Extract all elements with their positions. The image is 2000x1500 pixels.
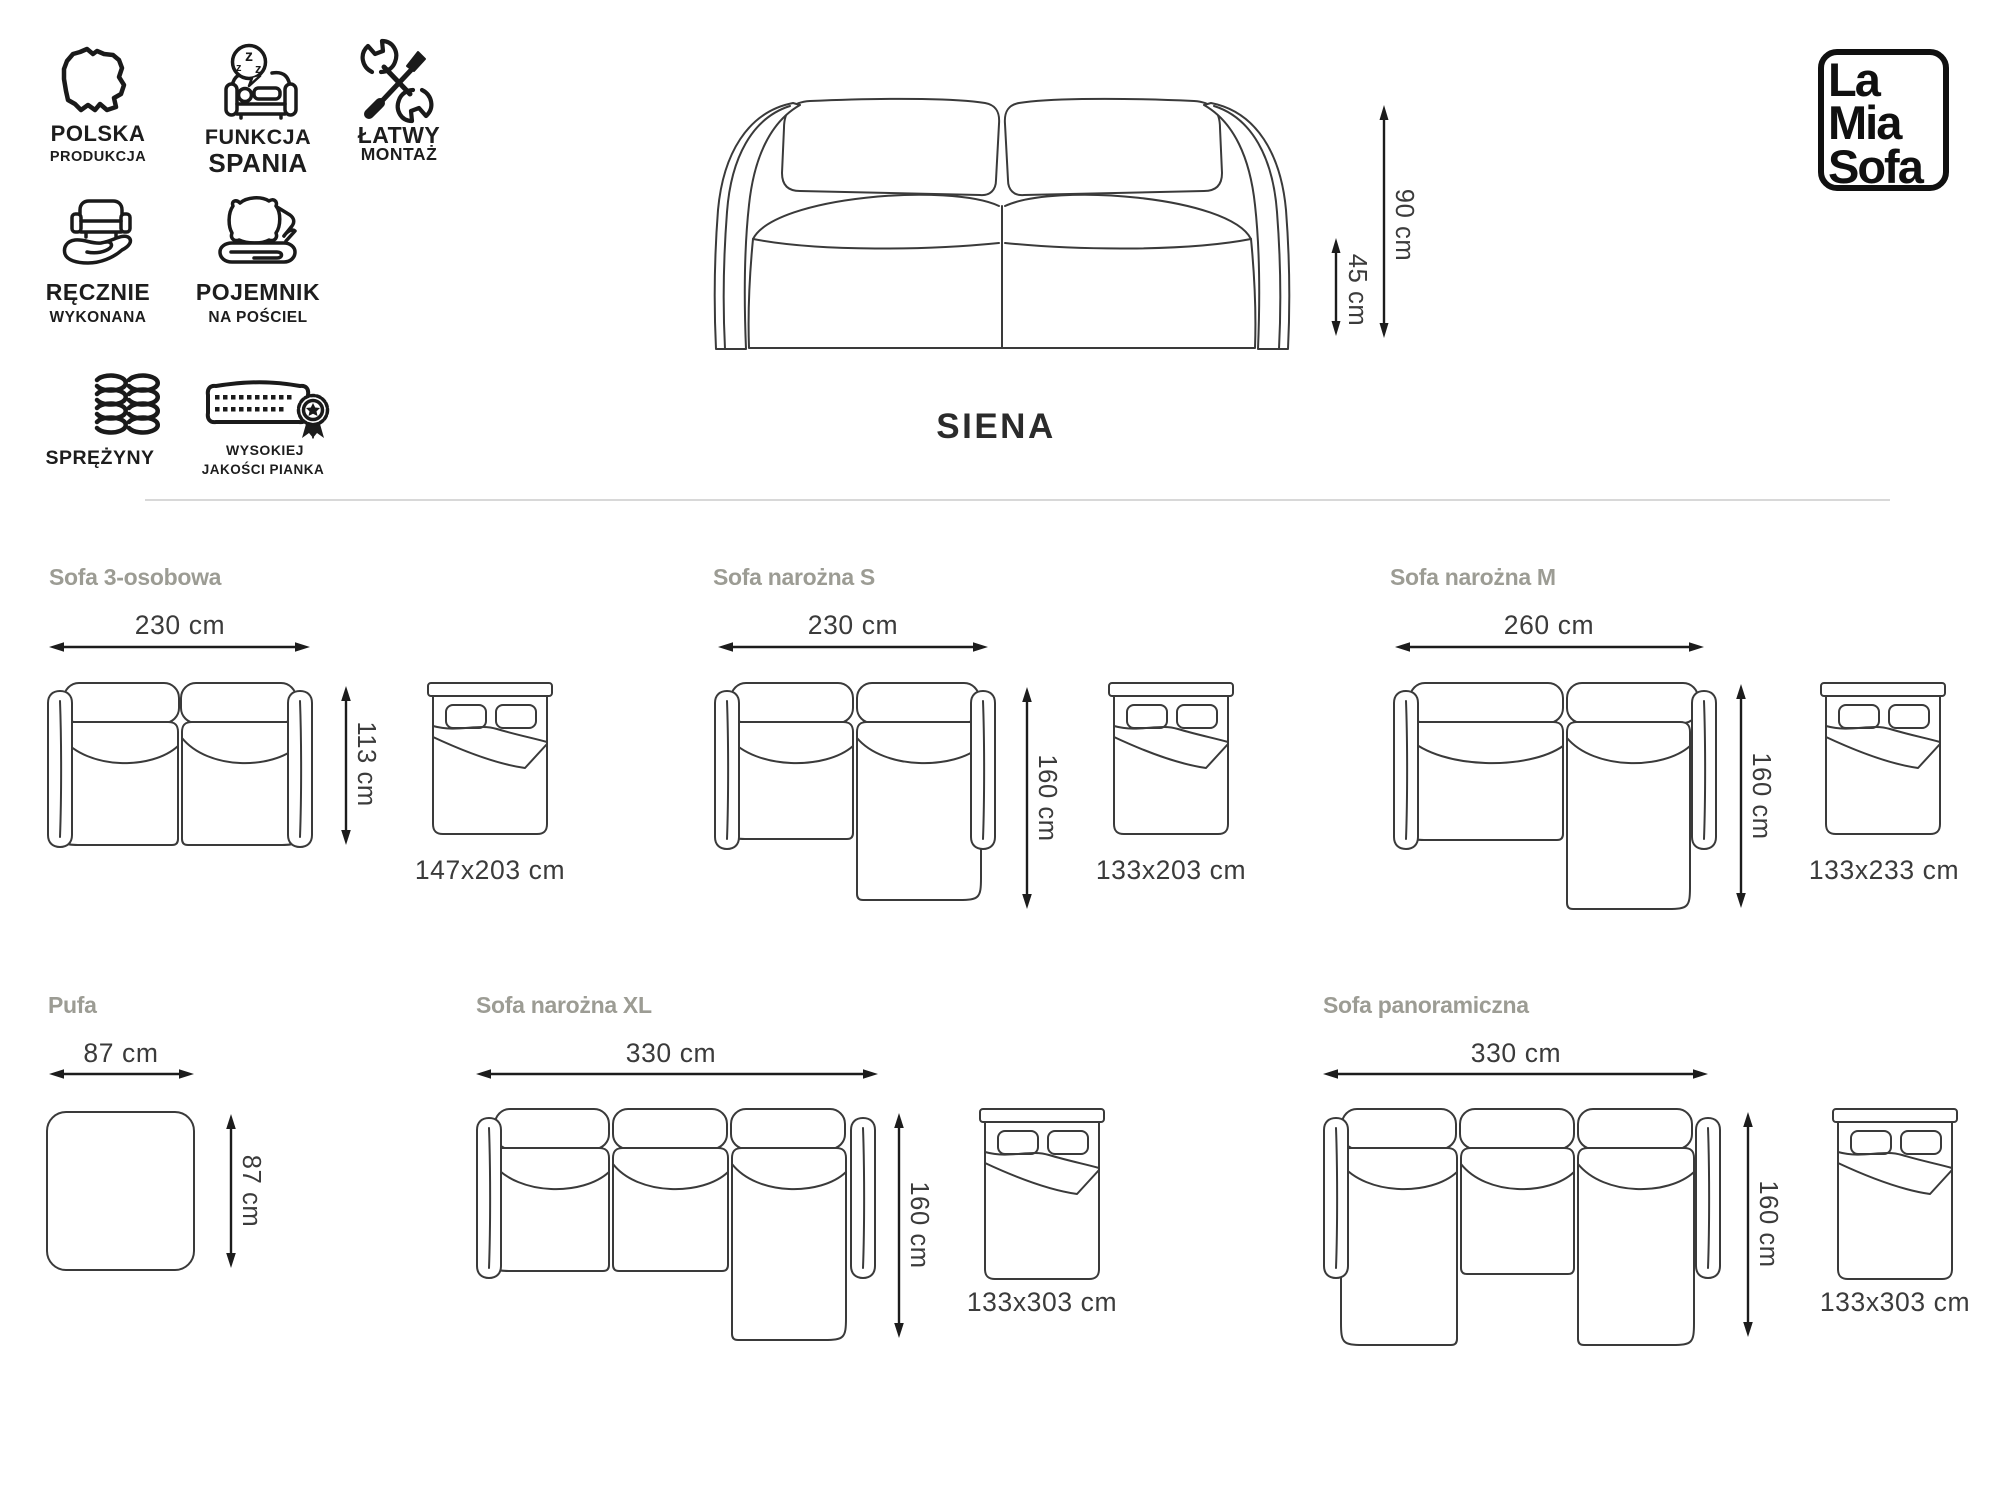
svg-text:160 cm: 160 cm — [905, 1181, 933, 1268]
svg-text:147x203 cm: 147x203 cm — [415, 855, 565, 885]
svg-text:133x303 cm: 133x303 cm — [1820, 1287, 1970, 1317]
svg-text:Sofa panoramiczna: Sofa panoramiczna — [1323, 992, 1529, 1018]
svg-text:330 cm: 330 cm — [626, 1038, 717, 1068]
svg-text:113 cm: 113 cm — [352, 721, 380, 806]
svg-text:90 cm: 90 cm — [1390, 189, 1418, 261]
svg-text:MONTAŻ: MONTAŻ — [361, 144, 438, 164]
svg-text:SPANIA: SPANIA — [208, 148, 307, 178]
svg-text:160 cm: 160 cm — [1747, 752, 1775, 839]
svg-text:45 cm: 45 cm — [1343, 254, 1371, 326]
svg-text:330 cm: 330 cm — [1471, 1038, 1562, 1068]
svg-text:133x303 cm: 133x303 cm — [967, 1287, 1117, 1317]
svg-text:FUNKCJA: FUNKCJA — [205, 125, 311, 149]
svg-text:SIENA: SIENA — [936, 407, 1055, 446]
svg-text:POJEMNIK: POJEMNIK — [196, 279, 320, 305]
svg-text:133x233 cm: 133x233 cm — [1809, 855, 1959, 885]
svg-text:133x203 cm: 133x203 cm — [1096, 855, 1246, 885]
svg-text:Sofa narożna XL: Sofa narożna XL — [476, 992, 652, 1018]
svg-text:PRODUKCJA: PRODUKCJA — [50, 149, 146, 165]
svg-text:WYSOKIEJ: WYSOKIEJ — [226, 442, 304, 458]
svg-text:Pufa: Pufa — [48, 992, 97, 1018]
svg-text:WYKONANA: WYKONANA — [50, 309, 147, 326]
svg-text:160 cm: 160 cm — [1754, 1180, 1782, 1267]
svg-text:230 cm: 230 cm — [135, 610, 226, 640]
svg-text:Sofa narożna M: Sofa narożna M — [1390, 564, 1556, 590]
svg-text:JAKOŚCI PIANKA: JAKOŚCI PIANKA — [202, 462, 325, 477]
svg-text:z: z — [255, 61, 262, 76]
svg-text:87 cm: 87 cm — [237, 1155, 265, 1227]
svg-text:Sofa: Sofa — [1828, 140, 1925, 193]
svg-text:Sofa 3-osobowa: Sofa 3-osobowa — [49, 564, 222, 590]
svg-text:230 cm: 230 cm — [808, 610, 899, 640]
svg-text:Sofa narożna S: Sofa narożna S — [713, 564, 875, 590]
svg-text:260 cm: 260 cm — [1504, 610, 1595, 640]
svg-text:POLSKA: POLSKA — [51, 121, 146, 146]
svg-text:SPRĘŻYNY: SPRĘŻYNY — [45, 446, 154, 469]
svg-text:RĘCZNIE: RĘCZNIE — [46, 279, 150, 305]
svg-text:NA POŚCIEL: NA POŚCIEL — [208, 308, 307, 326]
svg-text:z: z — [245, 48, 253, 65]
svg-text:87 cm: 87 cm — [83, 1038, 158, 1068]
svg-text:z: z — [236, 62, 242, 74]
svg-text:160 cm: 160 cm — [1033, 754, 1061, 841]
